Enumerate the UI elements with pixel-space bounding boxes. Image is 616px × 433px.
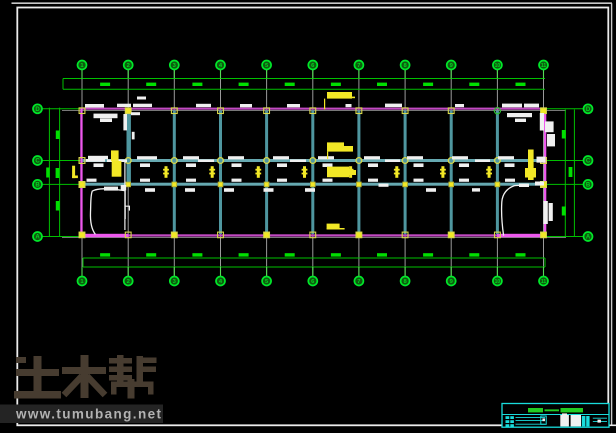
svg-text:C: C xyxy=(586,159,591,165)
svg-text:D: D xyxy=(35,107,40,113)
svg-text:A: A xyxy=(35,235,40,241)
svg-text:www.tumubang.net: www.tumubang.net xyxy=(15,407,162,422)
svg-text:A: A xyxy=(586,235,591,241)
svg-text:11: 11 xyxy=(541,279,547,285)
svg-text:10: 10 xyxy=(495,279,501,285)
svg-text:7: 7 xyxy=(357,63,360,69)
svg-text:D: D xyxy=(586,107,591,113)
svg-text:2: 2 xyxy=(127,63,130,69)
svg-text:C: C xyxy=(35,159,40,165)
svg-text:2: 2 xyxy=(127,279,130,285)
svg-text:10: 10 xyxy=(495,63,501,69)
svg-text:11: 11 xyxy=(541,63,547,69)
svg-text:7: 7 xyxy=(357,279,360,285)
svg-text:B: B xyxy=(586,183,591,189)
svg-text:B: B xyxy=(35,183,40,189)
